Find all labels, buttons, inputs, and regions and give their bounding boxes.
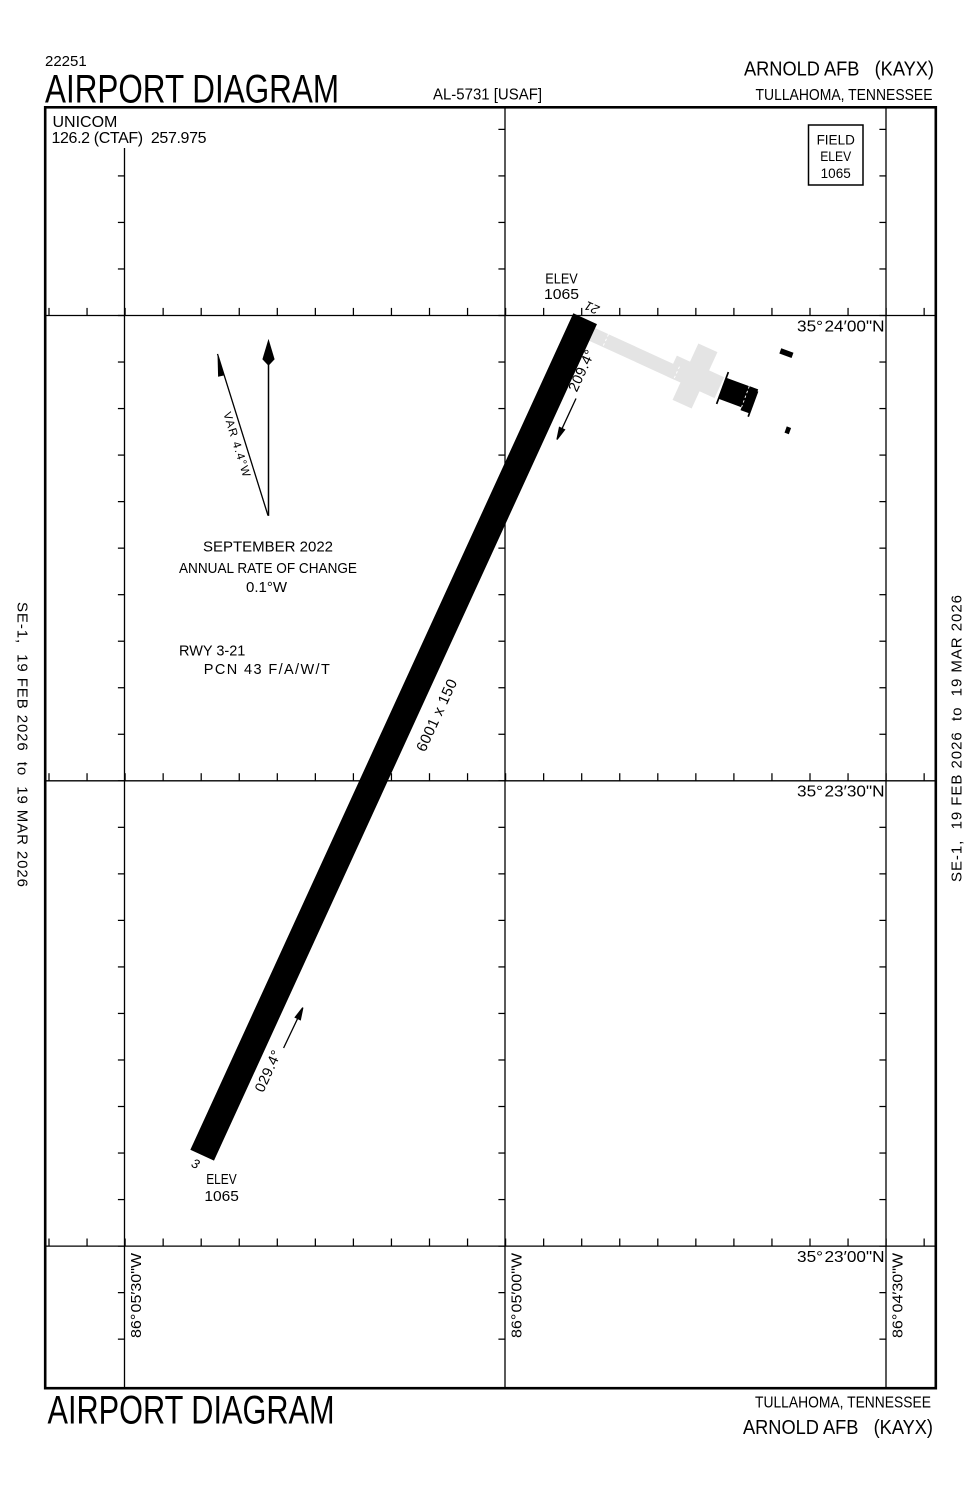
svg-text:86° 05′00"W: 86° 05′00"W: [509, 1252, 526, 1338]
svg-text:35° 23′00"N: 35° 23′00"N: [797, 1249, 885, 1266]
svg-text:ELEV: ELEV: [820, 149, 851, 164]
svg-text:1065: 1065: [204, 1189, 239, 1205]
svg-text:ELEV: ELEV: [545, 271, 578, 287]
svg-text:AIRPORT DIAGRAM: AIRPORT DIAGRAM: [45, 68, 339, 112]
svg-text:RWY 3-21: RWY 3-21: [179, 644, 245, 660]
svg-text:ARNOLD AFB (KAYX): ARNOLD AFB (KAYX): [743, 1416, 933, 1439]
svg-text:1065: 1065: [544, 287, 579, 303]
svg-text:AL-5731 [USAF]: AL-5731 [USAF]: [433, 87, 542, 104]
svg-text:1065: 1065: [821, 166, 851, 181]
svg-text:UNICOM: UNICOM: [53, 114, 118, 131]
svg-text:FIELD: FIELD: [817, 133, 856, 148]
svg-text:ELEV: ELEV: [206, 1172, 237, 1188]
svg-text:SE-1, 19 FEB 2026 to 19 MAR: SE-1, 19 FEB 2026 to 19 MAR 2026: [14, 602, 31, 887]
svg-text:SEPTEMBER 2022: SEPTEMBER 2022: [203, 539, 333, 556]
svg-text:TULLAHOMA, TENNESSEE: TULLAHOMA, TENNESSEE: [755, 1395, 931, 1412]
svg-text:SE-1, 19 FEB 2026 to 19 MAR: SE-1, 19 FEB 2026 to 19 MAR 2026: [949, 595, 966, 882]
svg-text:AIRPORT DIAGRAM: AIRPORT DIAGRAM: [48, 1389, 335, 1433]
svg-text:0.1°W: 0.1°W: [246, 579, 288, 596]
svg-text:ARNOLD AFB (KAYX): ARNOLD AFB (KAYX): [744, 59, 934, 81]
svg-text:126.2 (CTAF) 257.975: 126.2 (CTAF) 257.975: [52, 130, 207, 147]
svg-text:35° 23′30"N: 35° 23′30"N: [797, 784, 885, 801]
svg-text:86° 04′30"W: 86° 04′30"W: [890, 1252, 907, 1338]
svg-text:35° 24′00"N: 35° 24′00"N: [797, 318, 885, 335]
svg-text:86° 05′30"W: 86° 05′30"W: [128, 1252, 145, 1338]
svg-text:TULLAHOMA, TENNESSEE: TULLAHOMA, TENNESSEE: [756, 87, 933, 104]
svg-text:PCN 43 F/A/W/T: PCN 43 F/A/W/T: [204, 662, 330, 678]
svg-text:ANNUAL RATE OF CHANGE: ANNUAL RATE OF CHANGE: [179, 560, 357, 577]
